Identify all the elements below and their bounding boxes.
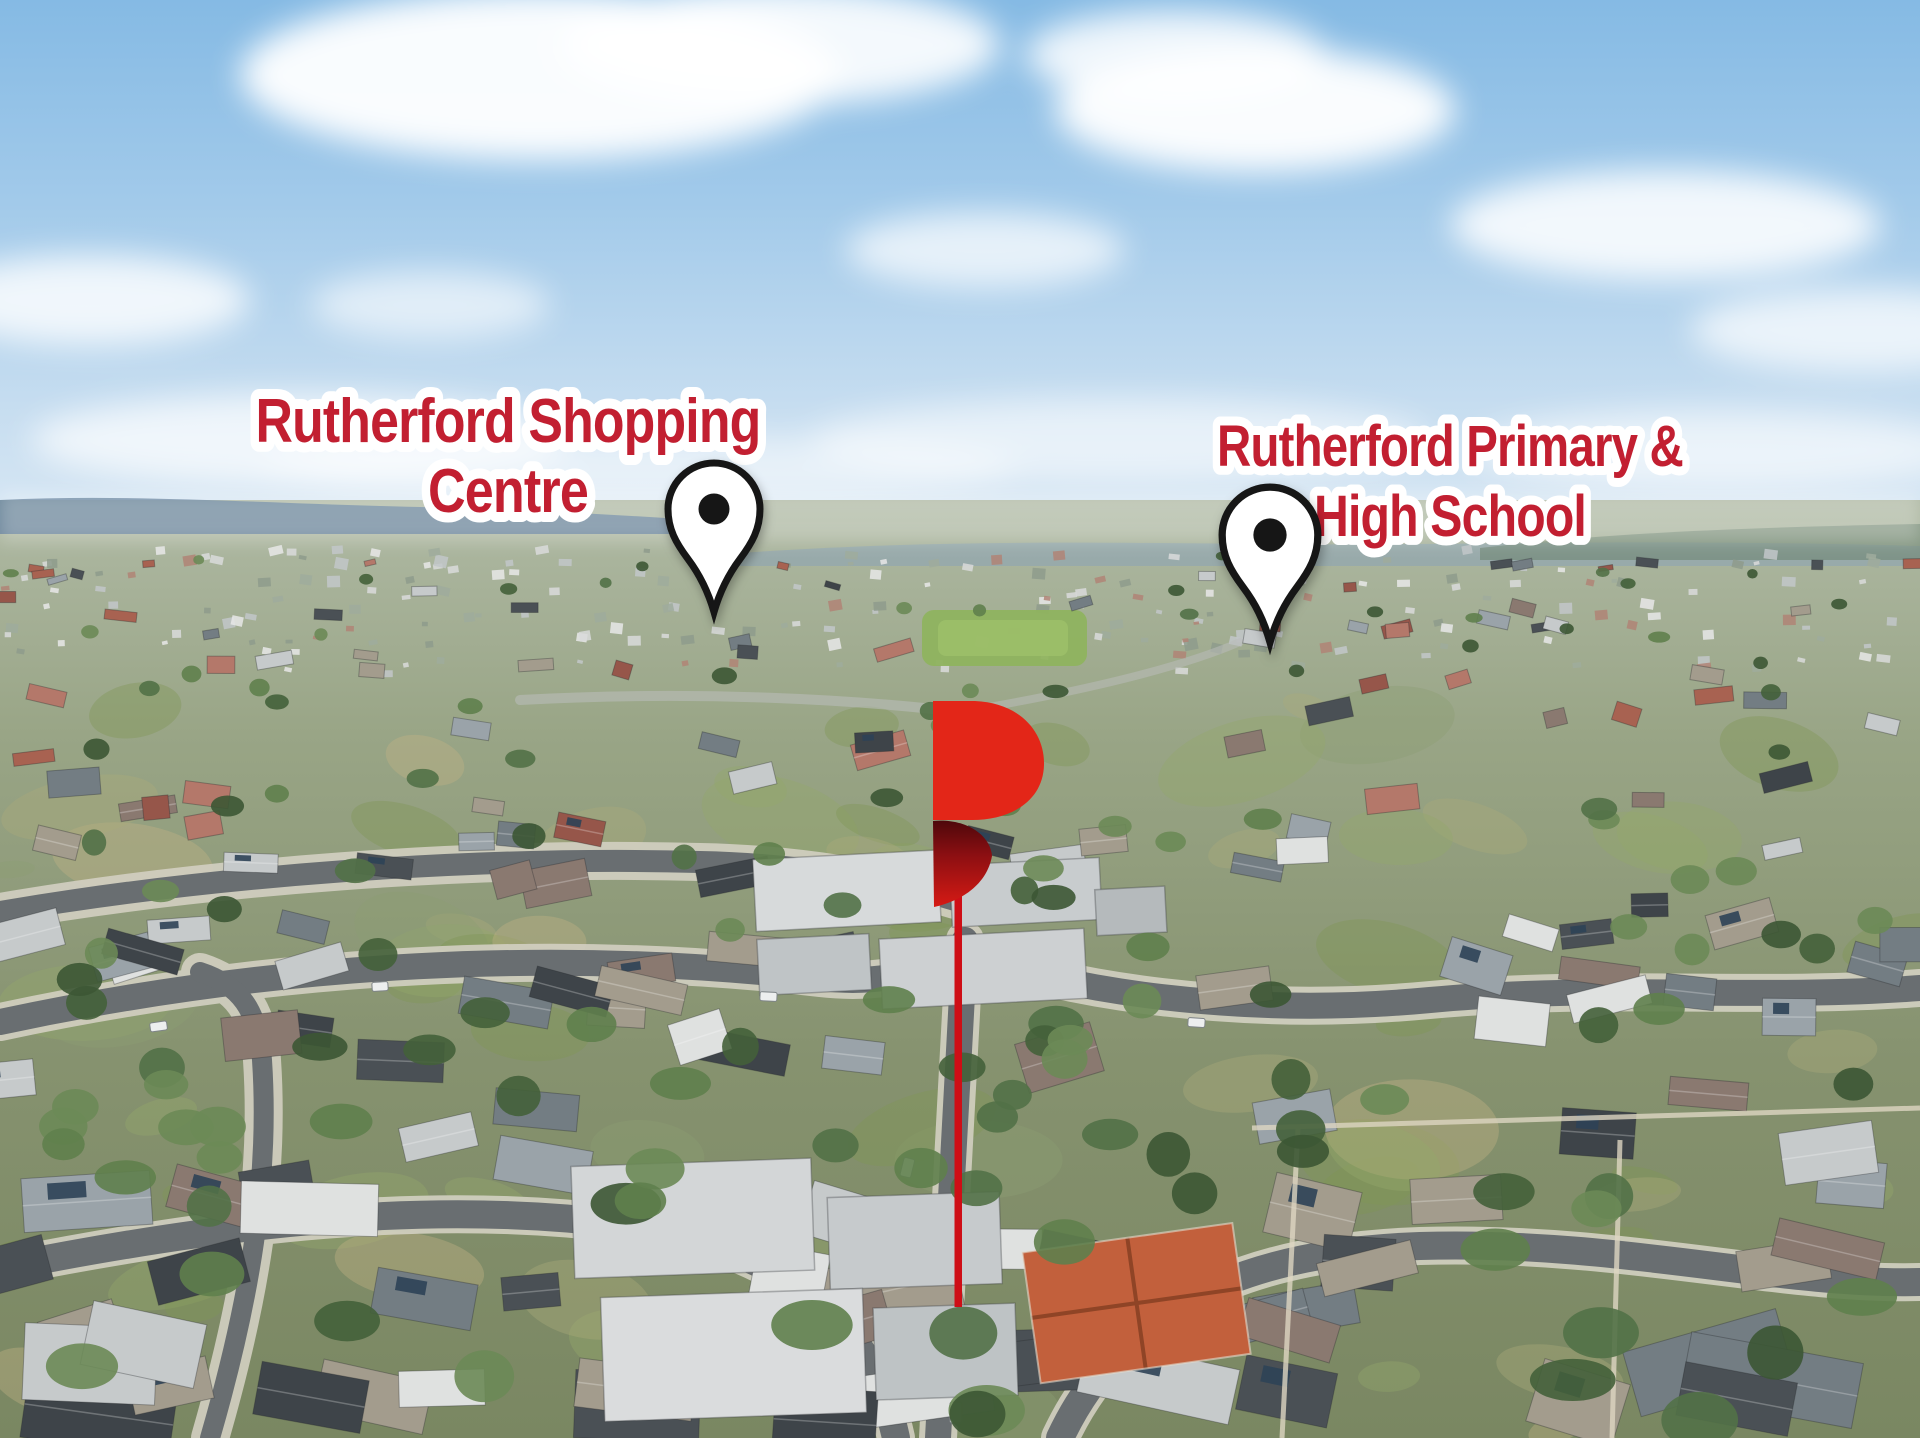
label-school-line2: High School — [1314, 484, 1586, 549]
label-school-line1: Rutherford Primary & — [1217, 414, 1683, 479]
brand-logo-p-icon — [933, 701, 1044, 820]
shopping-centre-pin — [668, 463, 760, 612]
location-pointer-line — [955, 856, 963, 1307]
annotation-overlay: Rutherford Shopping Centre Rutherford Pr… — [0, 0, 1920, 1438]
map-pin-dot — [699, 494, 730, 525]
label-shopping-centre-line2: Centre — [428, 457, 588, 526]
map-pin-dot — [1253, 518, 1286, 551]
school-pin — [1222, 487, 1318, 642]
label-shopping-centre-line1: Rutherford Shopping — [256, 387, 761, 456]
map-pin-icon — [668, 463, 760, 612]
brand-logo-leaf — [933, 821, 992, 907]
property-marker — [933, 701, 1044, 907]
map-pin-icon — [1222, 487, 1318, 642]
aerial-photo: Rutherford Shopping Centre Rutherford Pr… — [0, 0, 1920, 1438]
